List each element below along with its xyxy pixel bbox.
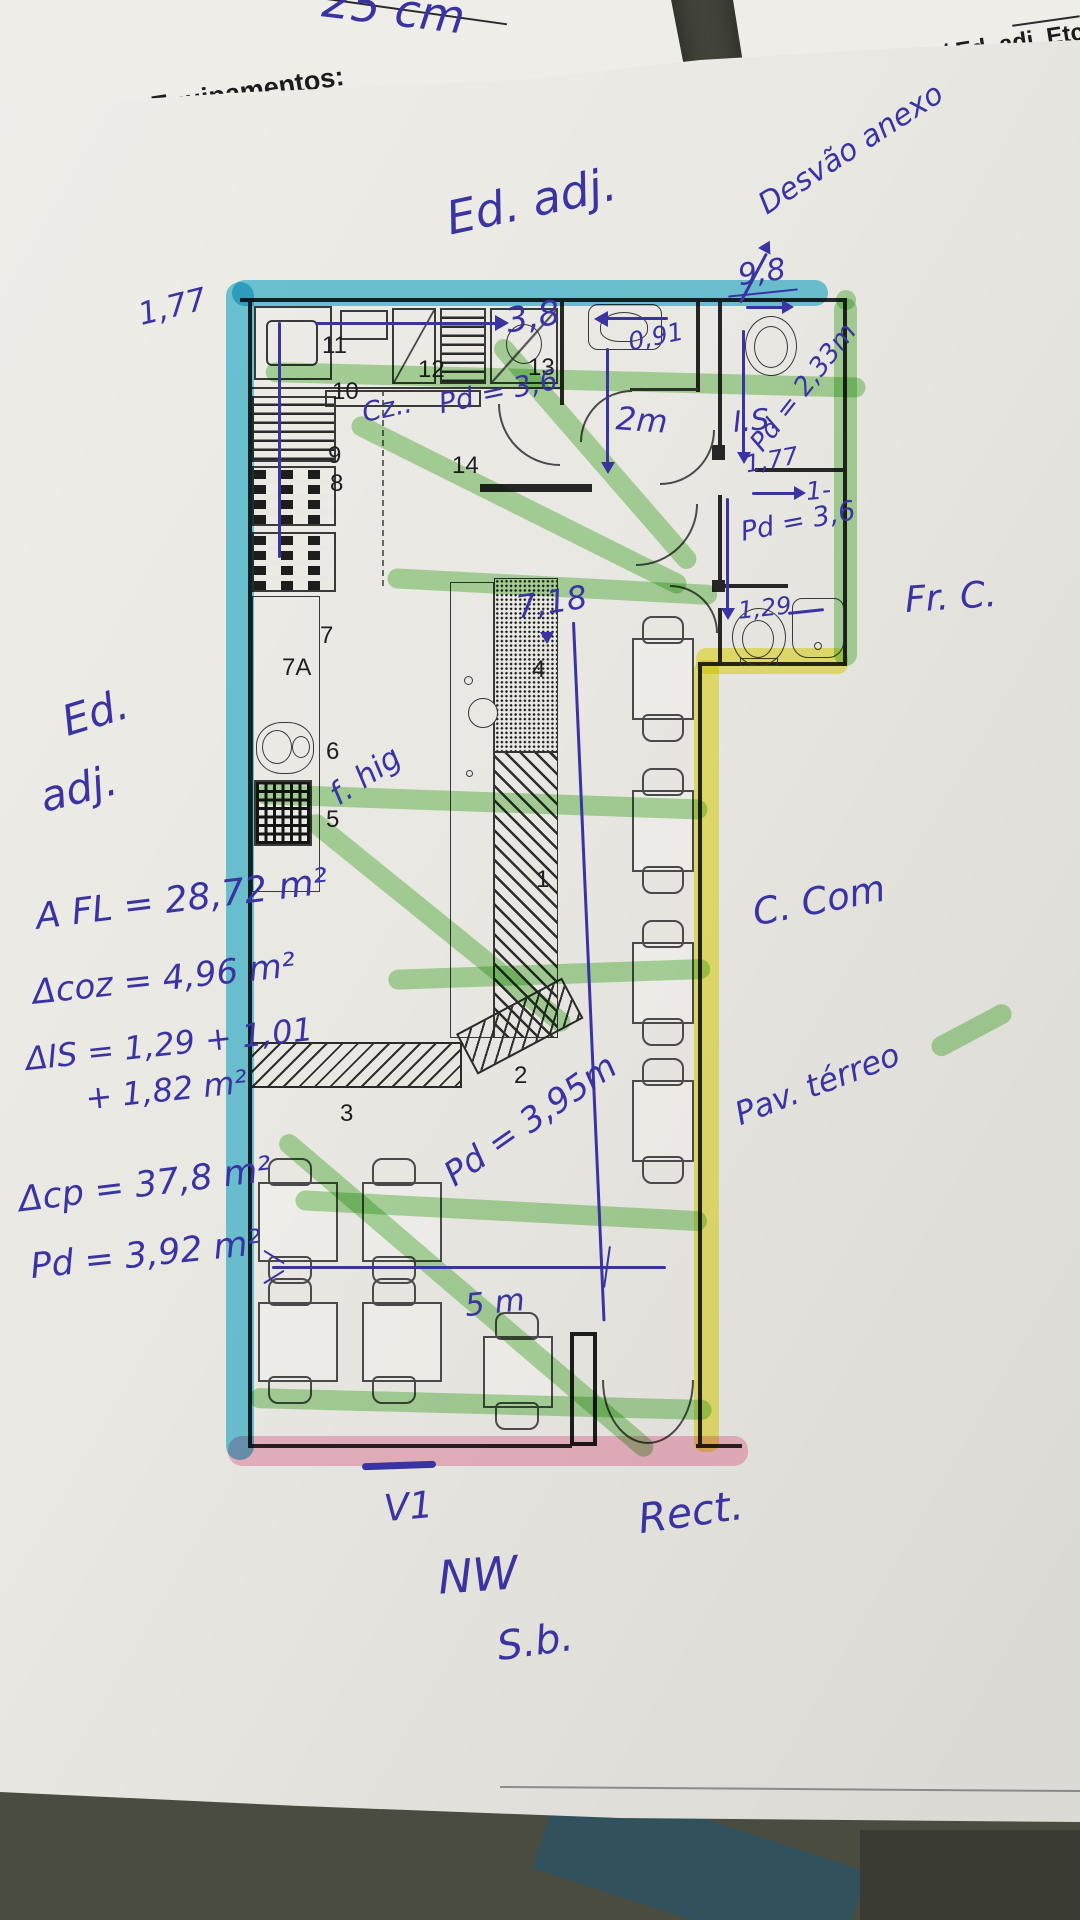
room-number: 2 <box>514 1064 527 1088</box>
service-circle-small-2 <box>466 770 473 777</box>
highlight-pink-bottom <box>228 1436 748 1466</box>
note-is: I.S. <box>732 404 780 437</box>
room-number: 7A <box>282 656 311 680</box>
wash-basin-bowl-left <box>262 730 292 764</box>
note-v1: V1 <box>382 1486 434 1527</box>
arrowhead-one <box>794 486 806 500</box>
room-number: 11 <box>322 334 347 358</box>
wash-basin-bowl-right <box>292 736 310 758</box>
pen-hline-3-8 <box>315 322 499 325</box>
room-number: 3 <box>340 1102 353 1126</box>
sink-unit-small <box>340 310 388 340</box>
room-number: 9 <box>328 444 341 468</box>
highlight-green-dot <box>836 290 856 310</box>
photo-of-annotated-floor-plan: 25 cm Equipamentos: Elevador ✓ Rede de G… <box>0 0 1080 1920</box>
room-number: 4 <box>532 658 545 682</box>
chair <box>642 616 684 644</box>
chair <box>642 1058 684 1086</box>
room-number: 8 <box>330 472 343 496</box>
pen-arrow-one <box>752 492 798 495</box>
chair <box>642 1156 684 1184</box>
chair <box>642 866 684 894</box>
arrowhead-wc <box>782 300 794 314</box>
shelf-unit-8 <box>252 532 336 592</box>
chair <box>372 1278 416 1306</box>
fridge-grill-unit <box>252 396 336 462</box>
dim-7-18: 7,18 <box>514 581 589 624</box>
table-bottom-b2 <box>362 1302 442 1382</box>
table-bottom-a2 <box>258 1302 338 1382</box>
note-nw: NW <box>436 1549 519 1600</box>
chair <box>642 920 684 948</box>
dim-9-8: 9,8 <box>736 255 787 291</box>
water-heater-circle <box>468 698 498 728</box>
shelf-unit-9 <box>252 466 336 526</box>
arrowhead-pd36wc <box>721 608 735 620</box>
pen-arrow-wc <box>746 306 786 309</box>
dim-5m: 5 m <box>464 1285 527 1322</box>
chair <box>642 1018 684 1046</box>
stove-inner <box>266 320 318 366</box>
highlight-yellow-right <box>694 660 719 1452</box>
pen-vline-pd36wc <box>726 498 729 614</box>
room-number: 6 <box>326 740 339 764</box>
arrowhead-7-18 <box>540 632 554 644</box>
room-number: 1 <box>536 868 549 892</box>
door-jamb-notch-1 <box>712 445 725 460</box>
desk-shadow-bottom-right <box>860 1830 1080 1920</box>
chair <box>642 768 684 796</box>
pen-vline-kitchen <box>278 322 281 558</box>
arrowhead-0-91 <box>594 311 608 327</box>
note-fr-c: Fr. C. <box>904 577 998 619</box>
dim-2m: 2m <box>615 402 669 438</box>
room-number: 7 <box>320 624 333 648</box>
pen-vline-2m <box>606 348 609 468</box>
door-arc-is <box>660 430 715 485</box>
dim-3-8: 3,8 <box>503 296 562 339</box>
toilet-is-inner <box>754 326 788 368</box>
chair <box>268 1278 312 1306</box>
arrowhead-2m <box>601 462 615 474</box>
chair <box>372 1158 416 1186</box>
pen-hline-0-91 <box>602 317 668 320</box>
table-right-1 <box>632 638 694 720</box>
wall-wing-left-b <box>718 495 722 582</box>
chair <box>642 714 684 742</box>
dim-1-29: 1,29 <box>737 593 793 622</box>
note-sb: S.b. <box>495 1617 576 1667</box>
table-right-4 <box>632 1080 694 1162</box>
service-circle-small-1 <box>464 676 473 685</box>
table-right-3 <box>632 942 694 1024</box>
